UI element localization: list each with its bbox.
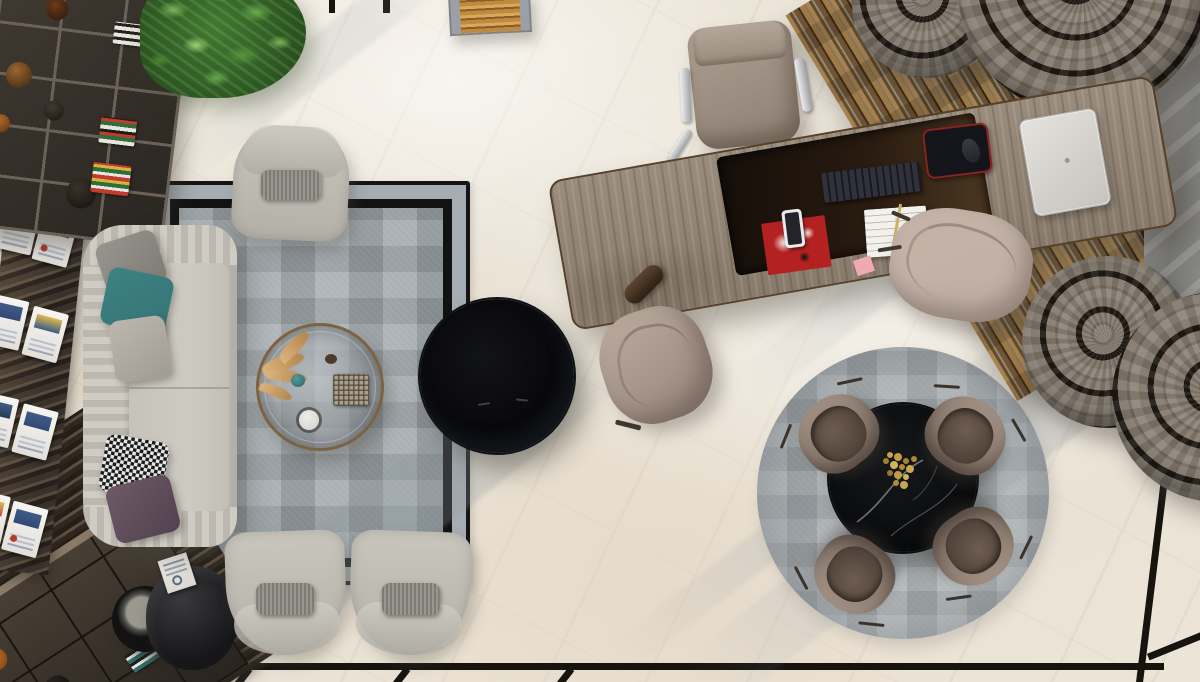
metal-grid-tray: [333, 374, 369, 406]
decor-pebble: [325, 354, 337, 364]
decor-ball: [43, 99, 65, 121]
decor-bowl: [45, 0, 70, 21]
office-chair: [686, 19, 802, 151]
white-pc-box: [1018, 107, 1112, 217]
serving-cart: [448, 0, 532, 36]
lounge-armchair-top: [230, 123, 352, 243]
decor-ball: [40, 670, 76, 682]
decor-ball: [4, 61, 33, 90]
certificate: [21, 306, 69, 364]
coffee-table: [256, 323, 384, 451]
candle-cup: [299, 410, 319, 430]
fur-pillow: [261, 170, 321, 200]
reflection-glint: [516, 398, 528, 401]
floor-inlay-stub-top: [329, 0, 335, 13]
glasses-case: [620, 261, 667, 308]
chrome-armrest: [680, 68, 692, 122]
floor-inlay-line-bottom: [150, 663, 1164, 670]
reflection-glint: [478, 402, 490, 406]
cushion-crease: [897, 212, 1025, 319]
book-stack: [90, 162, 131, 196]
mousepad: [922, 122, 994, 180]
gold-flower-centerpiece: [887, 452, 893, 458]
certificate: [11, 403, 59, 461]
pillow-light: [108, 314, 172, 383]
lounge-armchair-bottom-left: [224, 529, 348, 657]
cushion-crease: [611, 318, 700, 412]
decor-ball: [0, 644, 11, 674]
decor-ball: [0, 113, 11, 133]
mouse: [959, 136, 984, 165]
fur-pillow: [256, 583, 314, 615]
black-round-table: [420, 299, 574, 453]
book-stack: [98, 116, 137, 146]
office-render: [0, 0, 1200, 682]
fur-pillow: [382, 583, 440, 615]
sticky-note-pink: [853, 255, 875, 276]
lounge-armchair-bottom-right: [348, 529, 472, 657]
sofa-seam: [129, 387, 229, 389]
teal-bowl: [291, 374, 305, 387]
